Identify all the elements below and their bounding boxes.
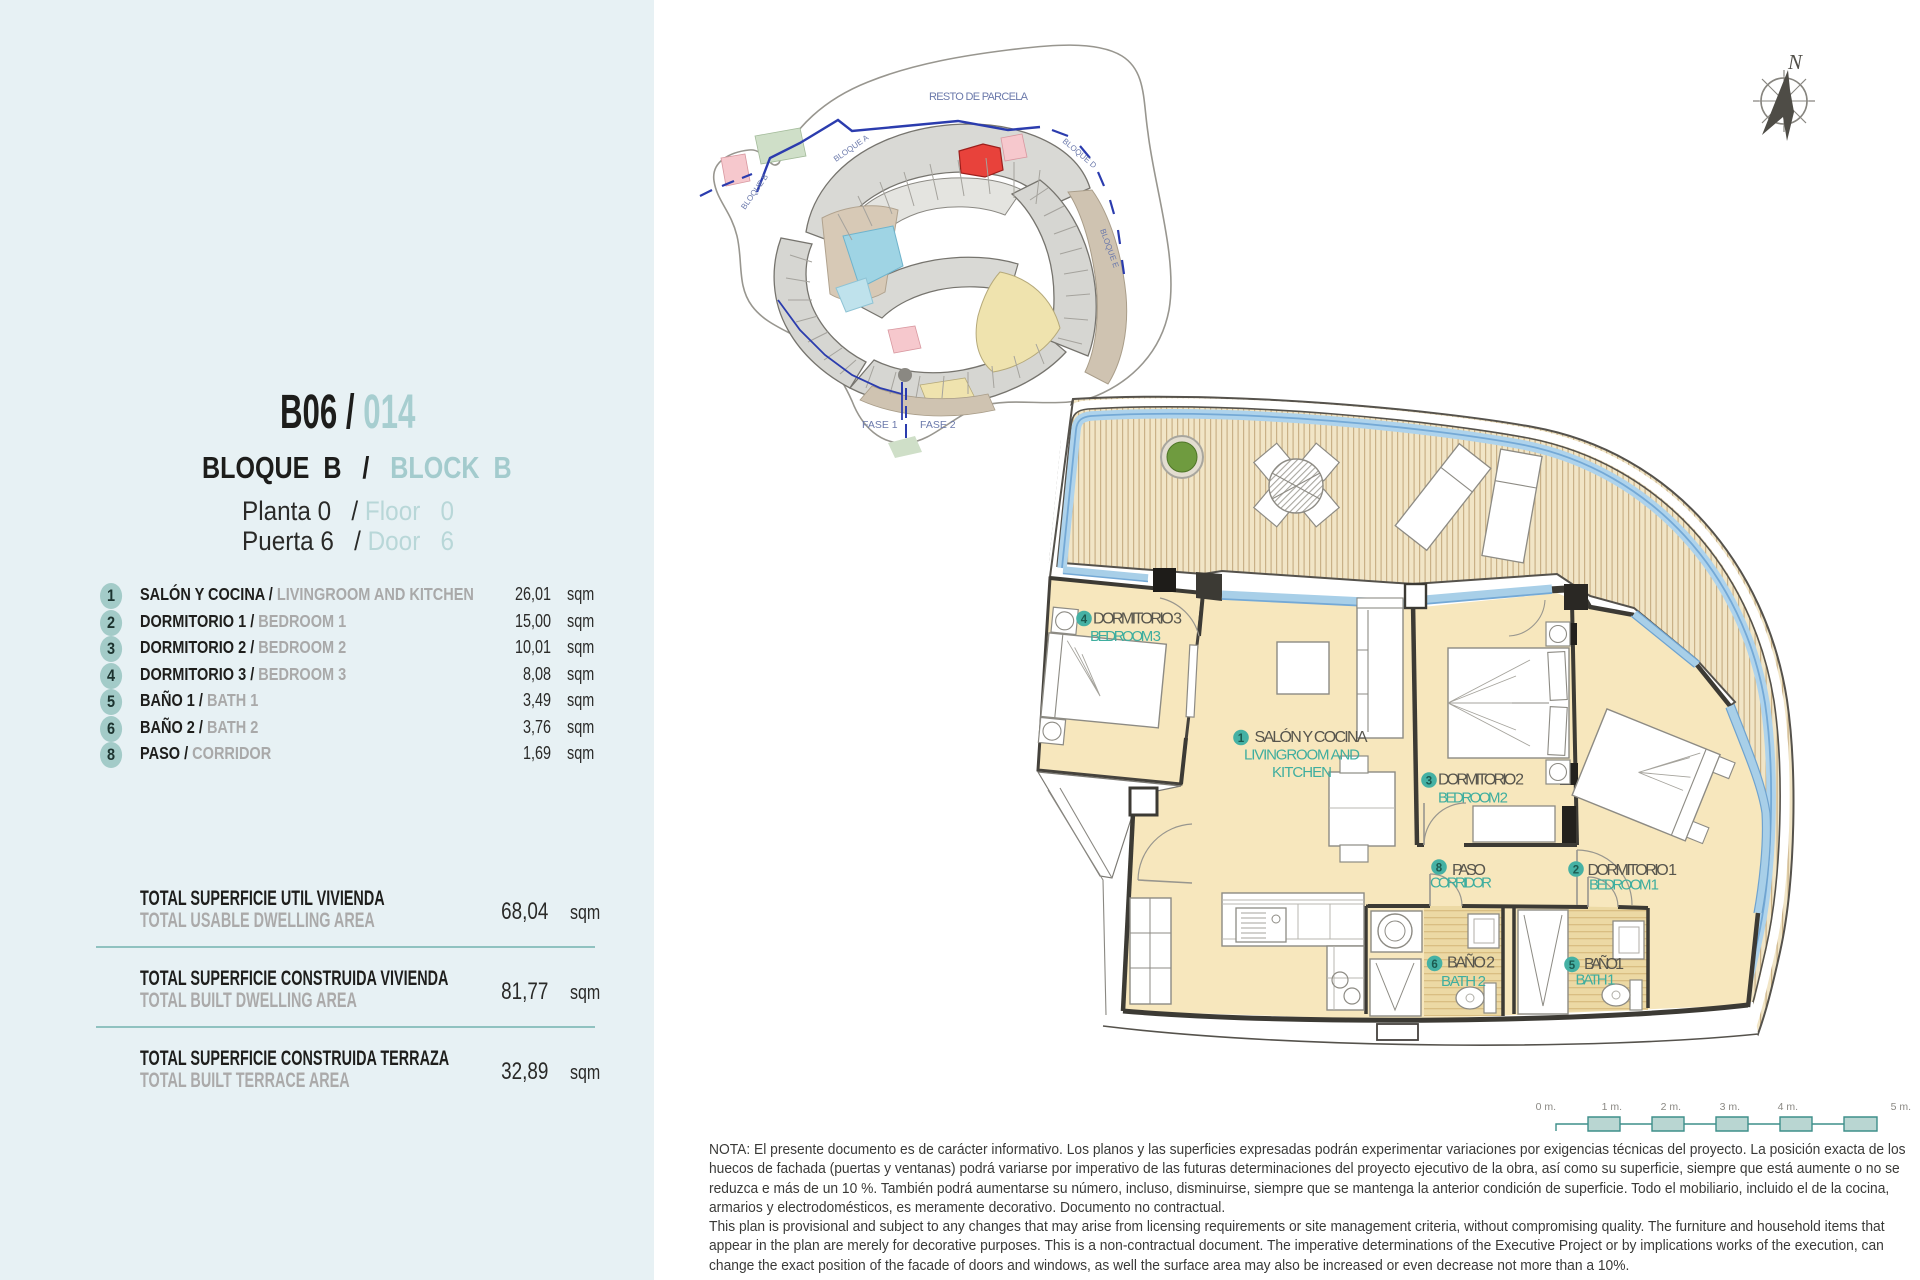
svg-text:8: 8 xyxy=(1436,863,1443,875)
svg-text:1: 1 xyxy=(1238,733,1245,745)
svg-text:SALÓN Y COCINA: SALÓN Y COCINA xyxy=(1255,727,1368,746)
svg-text:BEDROOM 1: BEDROOM 1 xyxy=(1589,877,1659,894)
svg-text:3: 3 xyxy=(1426,776,1432,788)
svg-text:LIVINGROOM AND: LIVINGROOM AND xyxy=(1244,747,1360,764)
svg-text:1 m.: 1 m. xyxy=(1602,1101,1622,1113)
svg-text:2: 2 xyxy=(1573,865,1579,877)
svg-text:5 m.: 5 m. xyxy=(1891,1101,1911,1113)
svg-text:BAÑO 2: BAÑO 2 xyxy=(1447,952,1495,972)
svg-text:N: N xyxy=(1787,50,1803,74)
svg-text:KITCHEN: KITCHEN xyxy=(1272,764,1332,781)
svg-text:4: 4 xyxy=(1081,614,1088,626)
svg-text:3 m.: 3 m. xyxy=(1720,1101,1740,1113)
svg-text:0 m.: 0 m. xyxy=(1536,1101,1556,1113)
svg-text:RESTO DE PARCELA: RESTO DE PARCELA xyxy=(929,91,1029,103)
svg-text:BAÑO 1: BAÑO 1 xyxy=(1584,953,1624,973)
svg-text:BATH 2: BATH 2 xyxy=(1441,973,1486,990)
svg-text:2 m.: 2 m. xyxy=(1661,1101,1681,1113)
svg-text:4 m.: 4 m. xyxy=(1778,1101,1798,1113)
svg-text:DORMITORIO 3: DORMITORIO 3 xyxy=(1093,611,1182,628)
svg-text:BEDROOM 3: BEDROOM 3 xyxy=(1090,628,1161,645)
svg-text:DORMITORIO 2: DORMITORIO 2 xyxy=(1438,772,1524,789)
svg-text:BEDROOM 2: BEDROOM 2 xyxy=(1438,790,1508,807)
svg-text:BATH 1: BATH 1 xyxy=(1576,972,1616,989)
svg-text:5: 5 xyxy=(1569,960,1576,972)
svg-text:CORRIDOR: CORRIDOR xyxy=(1430,875,1492,892)
svg-text:FASE 2: FASE 2 xyxy=(920,419,956,431)
svg-text:FASE 1: FASE 1 xyxy=(862,419,898,431)
svg-text:6: 6 xyxy=(1431,959,1437,971)
